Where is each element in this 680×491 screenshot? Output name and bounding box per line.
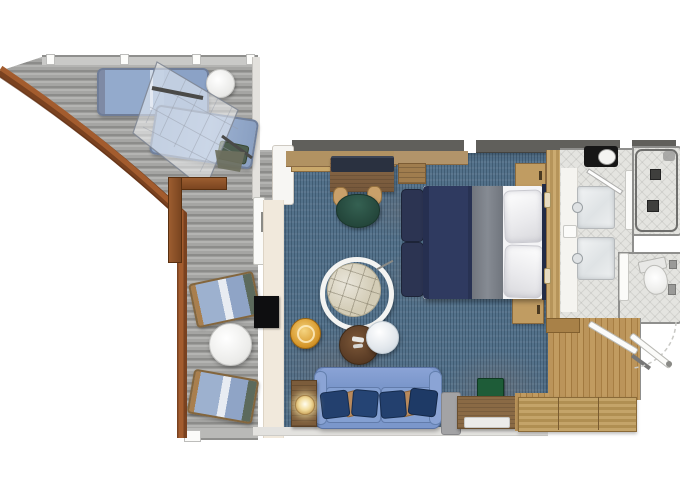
entrance-door-handle (666, 361, 672, 367)
door-layer (0, 0, 680, 491)
glass-shower-door (587, 169, 623, 194)
floor-plan-canvas (0, 0, 680, 491)
